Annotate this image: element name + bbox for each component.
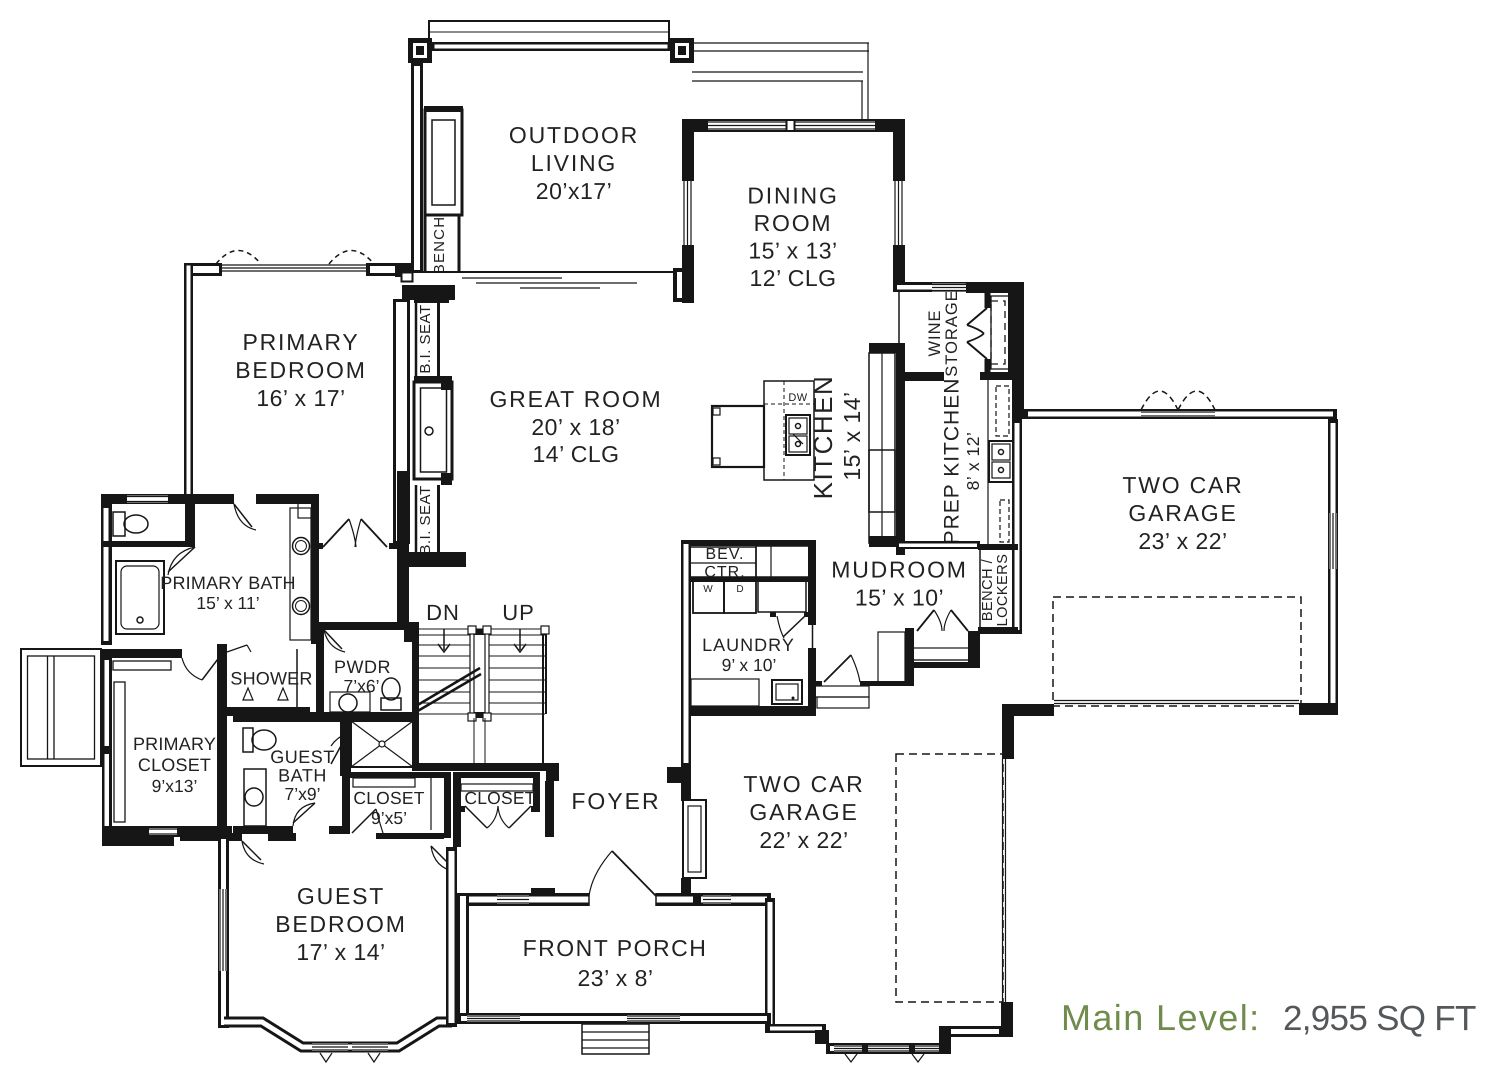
svg-text:14’ CLG: 14’ CLG: [532, 441, 619, 467]
svg-text:MUDROOM: MUDROOM: [831, 556, 968, 582]
svg-text:CLOSET: CLOSET: [353, 788, 424, 808]
svg-text:TWO CAR: TWO CAR: [1122, 472, 1243, 498]
svg-text:GREAT ROOM: GREAT ROOM: [489, 386, 662, 412]
svg-text:STORAGE: STORAGE: [943, 289, 961, 376]
svg-text:BEDROOM: BEDROOM: [235, 357, 366, 383]
svg-text:23’ x 8’: 23’ x 8’: [577, 965, 653, 991]
svg-text:9’x13’: 9’x13’: [152, 776, 198, 796]
svg-text:17’ x 14’: 17’ x 14’: [296, 939, 385, 965]
svg-text:GARAGE: GARAGE: [749, 799, 858, 825]
svg-text:D: D: [736, 584, 743, 595]
svg-text:GARAGE: GARAGE: [1128, 500, 1237, 526]
svg-text:22’ x 22’: 22’ x 22’: [759, 827, 848, 853]
svg-text:20’x17’: 20’x17’: [536, 178, 612, 204]
svg-text:BENCH /: BENCH /: [980, 558, 996, 621]
svg-text:BATH: BATH: [278, 765, 327, 785]
svg-text:LAUNDRY: LAUNDRY: [702, 635, 795, 655]
svg-text:FRONT PORCH: FRONT PORCH: [523, 935, 708, 961]
svg-text:CLOSET: CLOSET: [138, 755, 211, 775]
svg-text:15’ x 10’: 15’ x 10’: [855, 584, 944, 610]
svg-text:DN: DN: [426, 600, 460, 625]
svg-text:TWO CAR: TWO CAR: [743, 771, 864, 797]
svg-text:B.I. SEAT: B.I. SEAT: [417, 304, 434, 373]
svg-text:DW: DW: [788, 392, 807, 404]
svg-text:15’ x 11’: 15’ x 11’: [196, 593, 259, 613]
svg-text:Main Level:: Main Level:: [1061, 997, 1261, 1038]
svg-text:GUEST: GUEST: [270, 747, 335, 767]
svg-text:15’ x 13’: 15’ x 13’: [748, 237, 837, 263]
svg-text:GUEST: GUEST: [297, 883, 385, 909]
svg-text:SHOWER: SHOWER: [230, 668, 312, 688]
svg-text:7’x6’: 7’x6’: [343, 676, 379, 696]
svg-text:BEV.: BEV.: [705, 546, 744, 563]
svg-text:ROOM: ROOM: [754, 210, 833, 236]
svg-text:PRIMARY: PRIMARY: [243, 329, 360, 355]
svg-text:LIVING: LIVING: [531, 150, 617, 176]
svg-text:PWDR: PWDR: [334, 657, 391, 677]
svg-text:8’ x 12’: 8’ x 12’: [963, 432, 983, 491]
svg-text:LOCKERS: LOCKERS: [995, 554, 1011, 627]
svg-text:2,955 SQ FT: 2,955 SQ FT: [1283, 999, 1476, 1038]
svg-text:FOYER: FOYER: [571, 788, 660, 814]
svg-text:DINING: DINING: [747, 182, 838, 208]
svg-text:23’ x 22’: 23’ x 22’: [1138, 528, 1227, 554]
svg-text:BEDROOM: BEDROOM: [275, 911, 406, 937]
svg-text:UP: UP: [502, 600, 535, 625]
svg-text:OUTDOOR: OUTDOOR: [509, 122, 639, 148]
svg-text:KITCHEN: KITCHEN: [808, 375, 838, 500]
svg-text:PREP KITCHEN: PREP KITCHEN: [941, 378, 964, 545]
svg-text:16’ x 17’: 16’ x 17’: [256, 385, 345, 411]
svg-text:BENCH: BENCH: [431, 216, 448, 275]
svg-text:PRIMARY: PRIMARY: [133, 734, 216, 754]
svg-text:W: W: [703, 584, 713, 595]
svg-text:PRIMARY BATH: PRIMARY BATH: [160, 573, 295, 593]
svg-text:20’ x 18’: 20’ x 18’: [531, 414, 620, 440]
svg-text:9’ x 10’: 9’ x 10’: [722, 655, 777, 675]
svg-text:15’ x 14’: 15’ x 14’: [839, 391, 865, 480]
svg-text:CLOSET: CLOSET: [464, 788, 535, 808]
svg-text:12’ CLG: 12’ CLG: [749, 265, 836, 291]
svg-text:7’x9’: 7’x9’: [284, 784, 320, 804]
svg-text:B.I. SEAT: B.I. SEAT: [417, 485, 434, 554]
svg-text:WINE: WINE: [926, 309, 944, 356]
